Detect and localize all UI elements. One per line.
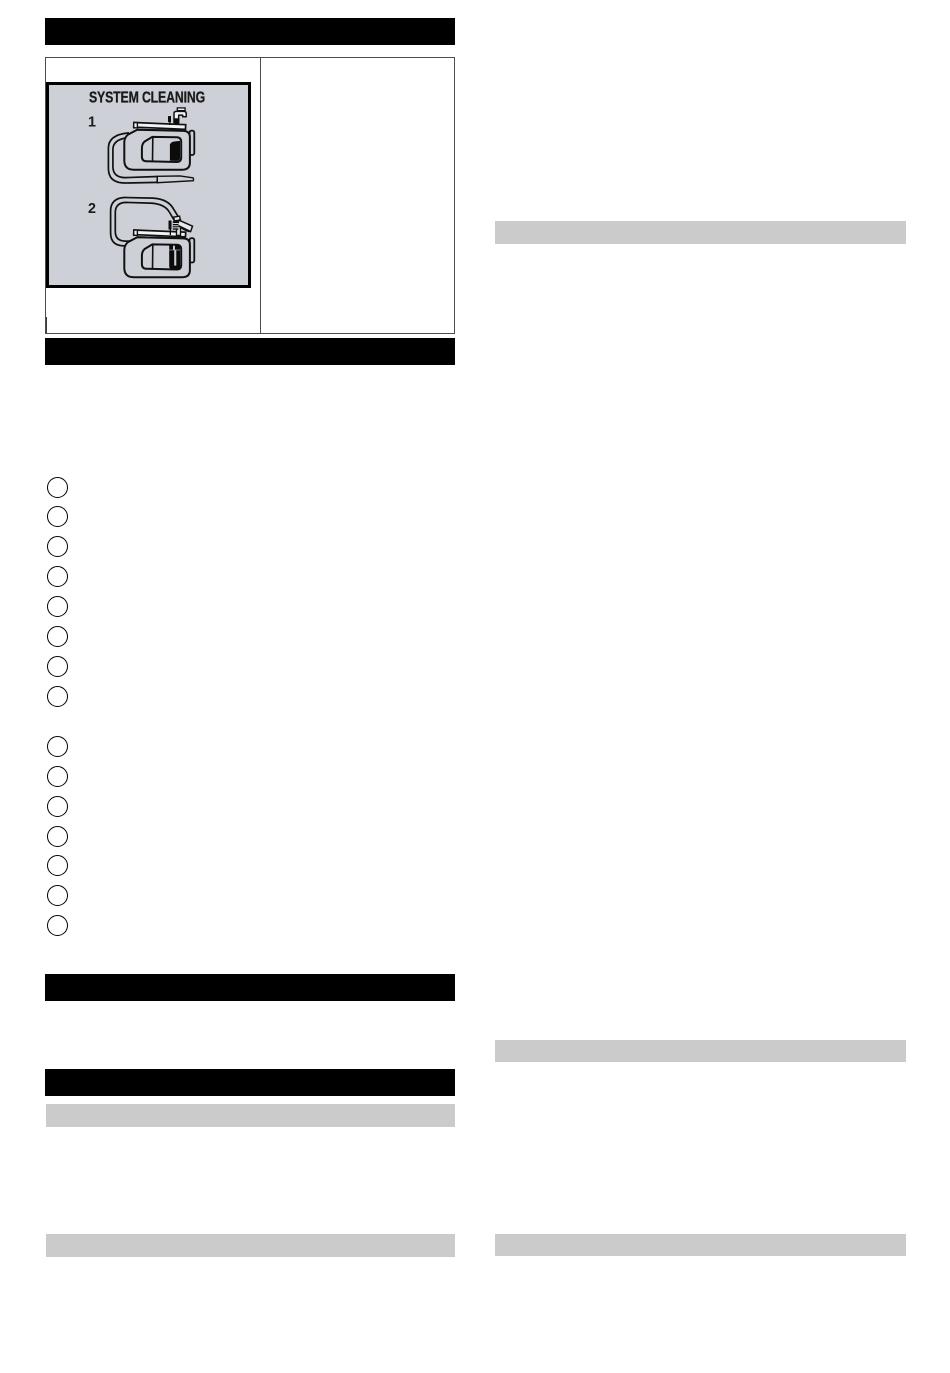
svg-text:1: 1 — [88, 114, 96, 130]
svg-text:SYSTEM CLEANING: SYSTEM CLEANING — [89, 89, 205, 106]
svg-text:2: 2 — [88, 201, 96, 217]
